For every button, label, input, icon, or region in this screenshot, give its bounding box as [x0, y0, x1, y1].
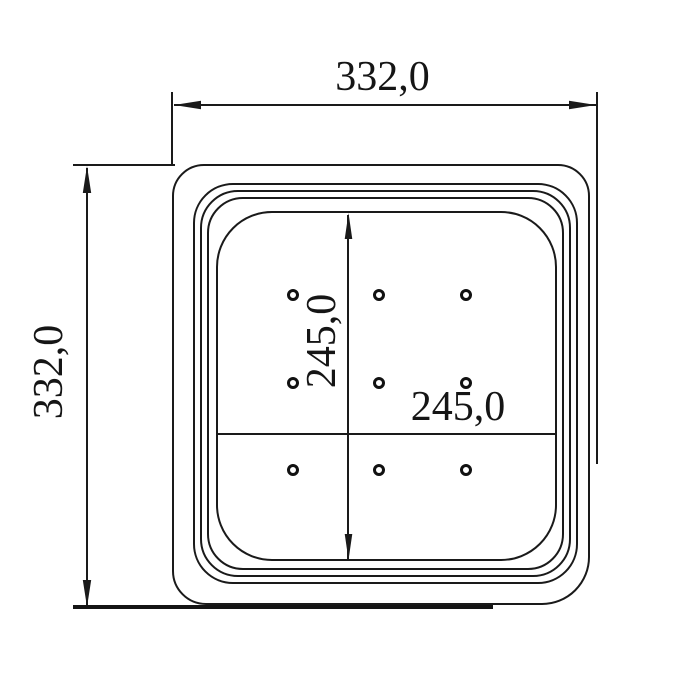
extension-line-top-left	[171, 92, 173, 166]
extension-line-top-right	[596, 92, 598, 464]
hole-marker	[373, 377, 385, 389]
arrowhead-up-icon	[82, 166, 92, 193]
hole-marker	[460, 289, 472, 301]
dimension-line-inner-horizontal	[218, 433, 556, 435]
hole-marker	[460, 377, 472, 389]
dimension-hole-field-height-label: 245,0	[300, 288, 344, 394]
arrowhead-left-icon	[174, 100, 201, 110]
extension-line-left-top	[73, 164, 175, 166]
hole-marker	[373, 464, 385, 476]
hole-marker	[287, 377, 299, 389]
hole-marker	[460, 464, 472, 476]
dimension-line-left	[86, 168, 88, 606]
dimension-line-inner-vertical	[347, 215, 349, 559]
hole-marker	[287, 289, 299, 301]
dimension-hole-field-width-label: 245,0	[405, 385, 511, 429]
arrowhead-right-icon	[569, 100, 596, 110]
hole-marker	[287, 464, 299, 476]
dimension-overall-width-label: 332,0	[330, 55, 435, 99]
dimension-overall-height-label: 332,0	[27, 319, 71, 425]
technical-drawing-canvas: 332,0 332,0 245,0 245,0	[0, 0, 700, 700]
dimension-line-top	[174, 104, 596, 106]
arrowhead-down-icon	[82, 580, 92, 607]
hole-marker	[373, 289, 385, 301]
extension-line-left-bottom	[73, 605, 493, 609]
